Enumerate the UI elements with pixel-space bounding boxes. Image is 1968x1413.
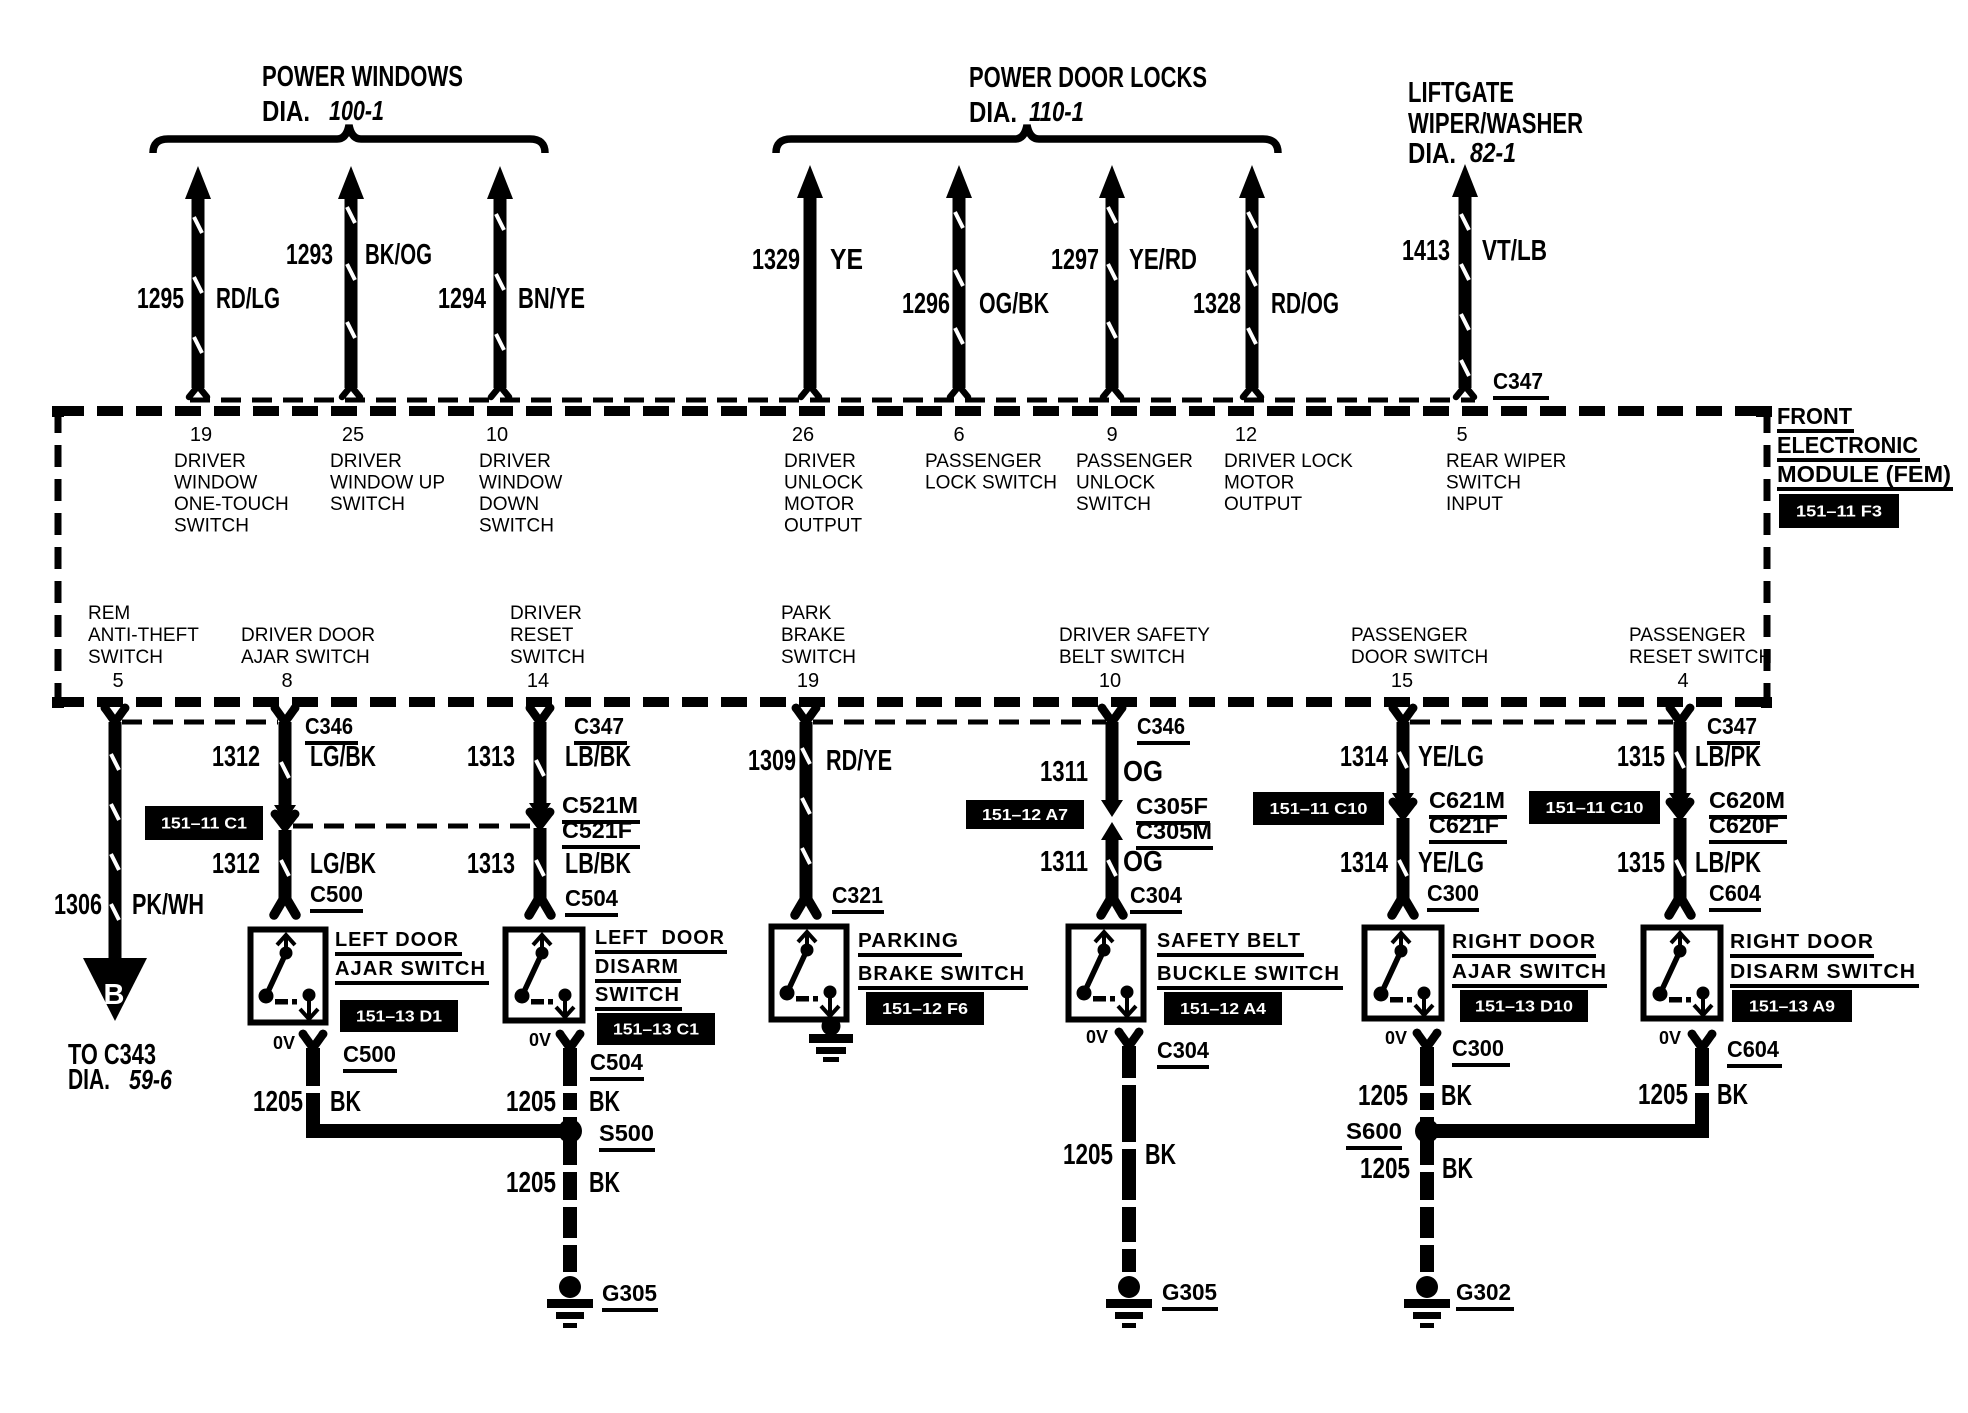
svg-text:151–11 C10: 151–11 C10 xyxy=(1546,800,1644,817)
svg-text:WINDOW: WINDOW xyxy=(479,473,562,494)
svg-text:DRIVER SAFETY: DRIVER SAFETY xyxy=(1059,625,1210,646)
svg-text:C305M: C305M xyxy=(1136,818,1212,844)
svg-text:YE/LG: YE/LG xyxy=(1418,847,1484,879)
svg-text:BUCKLE SWITCH: BUCKLE SWITCH xyxy=(1157,963,1340,985)
svg-text:DIA.: DIA. xyxy=(969,97,1017,129)
svg-text:AJAR SWITCH: AJAR SWITCH xyxy=(241,647,370,668)
svg-text:1313: 1313 xyxy=(467,848,515,880)
svg-text:LG/BK: LG/BK xyxy=(310,848,376,880)
svg-text:DIA.: DIA. xyxy=(262,96,310,128)
svg-text:19: 19 xyxy=(797,670,819,692)
svg-text:C347: C347 xyxy=(574,713,624,739)
svg-text:OUTPUT: OUTPUT xyxy=(784,516,863,537)
svg-text:S500: S500 xyxy=(599,1120,654,1146)
svg-text:1296: 1296 xyxy=(902,288,950,320)
svg-text:1306: 1306 xyxy=(54,889,102,921)
svg-text:C346: C346 xyxy=(305,713,353,739)
svg-text:DOOR SWITCH: DOOR SWITCH xyxy=(1351,647,1488,668)
svg-text:12: 12 xyxy=(1235,424,1257,446)
svg-text:MOTOR: MOTOR xyxy=(1224,473,1294,494)
svg-text:DRIVER: DRIVER xyxy=(174,451,246,472)
svg-text:1315: 1315 xyxy=(1617,741,1665,773)
svg-text:WINDOW UP: WINDOW UP xyxy=(330,473,445,494)
svg-text:LEFT DOOR: LEFT DOOR xyxy=(335,929,459,951)
svg-text:LOCK SWITCH: LOCK SWITCH xyxy=(925,473,1057,494)
svg-text:1205: 1205 xyxy=(506,1167,556,1199)
svg-text:PARK: PARK xyxy=(781,603,832,624)
svg-text:C504: C504 xyxy=(565,885,618,911)
svg-text:82-1: 82-1 xyxy=(1470,137,1516,168)
svg-text:151–12 A7: 151–12 A7 xyxy=(982,807,1068,824)
svg-text:1314: 1314 xyxy=(1340,741,1388,773)
svg-text:C620F: C620F xyxy=(1709,812,1779,838)
svg-text:8: 8 xyxy=(281,670,292,692)
svg-text:SAFETY BELT: SAFETY BELT xyxy=(1157,930,1301,952)
svg-text:UNLOCK: UNLOCK xyxy=(784,473,864,494)
svg-text:C521F: C521F xyxy=(562,817,632,843)
svg-text:DRIVER: DRIVER xyxy=(784,451,856,472)
svg-text:0V: 0V xyxy=(1659,1028,1681,1048)
svg-text:BK: BK xyxy=(1145,1139,1176,1171)
svg-text:6: 6 xyxy=(953,424,964,446)
svg-text:LEFT DOOR: LEFT DOOR xyxy=(595,927,725,949)
svg-text:1314: 1314 xyxy=(1340,847,1388,879)
svg-text:SWITCH: SWITCH xyxy=(88,647,163,668)
svg-text:BK: BK xyxy=(589,1167,620,1199)
svg-text:DISARM SWITCH: DISARM SWITCH xyxy=(1730,961,1916,983)
svg-text:OG: OG xyxy=(1123,846,1163,878)
svg-text:DRIVER: DRIVER xyxy=(479,451,551,472)
svg-text:0V: 0V xyxy=(529,1030,551,1050)
svg-text:151–13 D1: 151–13 D1 xyxy=(356,1009,442,1026)
svg-text:C346: C346 xyxy=(1137,713,1185,739)
svg-text:1205: 1205 xyxy=(506,1086,556,1118)
svg-text:DISARM: DISARM xyxy=(595,956,679,978)
svg-text:RD/LG: RD/LG xyxy=(216,283,280,315)
svg-text:RIGHT DOOR: RIGHT DOOR xyxy=(1730,931,1874,953)
svg-text:DIA.: DIA. xyxy=(1408,138,1456,170)
svg-text:4: 4 xyxy=(1677,670,1688,692)
svg-text:C304: C304 xyxy=(1157,1037,1209,1063)
svg-text:10: 10 xyxy=(1099,670,1121,692)
svg-text:WIPER/WASHER: WIPER/WASHER xyxy=(1408,108,1583,140)
svg-text:SWITCH: SWITCH xyxy=(479,516,554,537)
svg-text:DRIVER: DRIVER xyxy=(330,451,402,472)
svg-text:FRONT: FRONT xyxy=(1777,403,1852,429)
svg-text:C504: C504 xyxy=(590,1049,643,1075)
svg-text:SWITCH: SWITCH xyxy=(330,494,405,515)
svg-text:POWER WINDOWS: POWER WINDOWS xyxy=(262,61,463,93)
svg-text:REAR WIPER: REAR WIPER xyxy=(1446,451,1566,472)
svg-text:151–13 C1: 151–13 C1 xyxy=(613,1022,699,1039)
svg-text:1205: 1205 xyxy=(1358,1080,1408,1112)
svg-text:151–13 D10: 151–13 D10 xyxy=(1475,999,1573,1016)
svg-text:LB/BK: LB/BK xyxy=(565,848,631,880)
svg-text:110-1: 110-1 xyxy=(1029,96,1084,127)
svg-text:1329: 1329 xyxy=(752,244,800,276)
svg-text:SWITCH: SWITCH xyxy=(781,647,856,668)
svg-text:1312: 1312 xyxy=(212,741,260,773)
svg-text:YE/LG: YE/LG xyxy=(1418,741,1484,773)
svg-text:SWITCH: SWITCH xyxy=(1076,494,1151,515)
svg-text:1205: 1205 xyxy=(253,1086,303,1118)
svg-text:C621M: C621M xyxy=(1429,787,1505,813)
svg-text:151–11 C10: 151–11 C10 xyxy=(1270,801,1368,818)
svg-text:UNLOCK: UNLOCK xyxy=(1076,473,1156,494)
svg-text:DRIVER: DRIVER xyxy=(510,603,582,624)
svg-text:MODULE (FEM): MODULE (FEM) xyxy=(1777,461,1951,487)
svg-text:G305: G305 xyxy=(602,1280,657,1306)
svg-text:BRAKE SWITCH: BRAKE SWITCH xyxy=(858,963,1025,985)
svg-text:DOWN: DOWN xyxy=(479,494,539,515)
svg-text:PASSENGER: PASSENGER xyxy=(1351,625,1468,646)
svg-text:15: 15 xyxy=(1391,670,1413,692)
svg-text:BK: BK xyxy=(1717,1079,1748,1111)
svg-text:LB/BK: LB/BK xyxy=(565,741,631,773)
svg-text:PASSENGER: PASSENGER xyxy=(1076,451,1193,472)
svg-text:RIGHT DOOR: RIGHT DOOR xyxy=(1452,931,1596,953)
svg-text:SWITCH: SWITCH xyxy=(510,647,585,668)
svg-text:C620M: C620M xyxy=(1709,787,1785,813)
svg-text:LIFTGATE: LIFTGATE xyxy=(1408,77,1514,109)
svg-text:INPUT: INPUT xyxy=(1446,494,1503,515)
svg-text:C347: C347 xyxy=(1707,713,1757,739)
svg-text:1311: 1311 xyxy=(1040,756,1088,788)
svg-text:PARKING: PARKING xyxy=(858,930,959,952)
svg-text:5: 5 xyxy=(112,670,123,692)
svg-text:S600: S600 xyxy=(1346,1118,1402,1144)
svg-text:BK/OG: BK/OG xyxy=(365,239,432,271)
svg-text:1205: 1205 xyxy=(1063,1139,1113,1171)
svg-text:100-1: 100-1 xyxy=(329,95,384,126)
svg-text:C305F: C305F xyxy=(1136,793,1208,819)
svg-text:C621F: C621F xyxy=(1429,812,1499,838)
svg-text:C604: C604 xyxy=(1727,1036,1779,1062)
svg-text:C304: C304 xyxy=(1130,882,1182,908)
svg-text:BK: BK xyxy=(589,1086,620,1118)
svg-text:BRAKE: BRAKE xyxy=(781,625,845,646)
svg-text:151–12 A4: 151–12 A4 xyxy=(1180,1001,1266,1018)
svg-text:LB/PK: LB/PK xyxy=(1695,741,1761,773)
svg-text:9: 9 xyxy=(1106,424,1117,446)
svg-text:1309: 1309 xyxy=(748,745,796,777)
svg-text:59-6: 59-6 xyxy=(129,1064,172,1095)
svg-text:LB/PK: LB/PK xyxy=(1695,847,1761,879)
svg-text:OUTPUT: OUTPUT xyxy=(1224,494,1303,515)
svg-text:AJAR SWITCH: AJAR SWITCH xyxy=(335,958,486,980)
svg-text:25: 25 xyxy=(342,424,364,446)
svg-text:151–11 F3: 151–11 F3 xyxy=(1796,504,1882,521)
svg-text:0V: 0V xyxy=(1385,1028,1407,1048)
svg-text:RD/OG: RD/OG xyxy=(1271,288,1339,320)
svg-text:DRIVER DOOR: DRIVER DOOR xyxy=(241,625,375,646)
svg-text:ANTI-THEFT: ANTI-THEFT xyxy=(88,625,199,646)
svg-text:1312: 1312 xyxy=(212,848,260,880)
svg-text:LG/BK: LG/BK xyxy=(310,741,376,773)
svg-text:G305: G305 xyxy=(1162,1279,1217,1305)
svg-text:SWITCH: SWITCH xyxy=(595,984,680,1006)
svg-text:151–11 C1: 151–11 C1 xyxy=(161,816,247,833)
svg-text:BN/YE: BN/YE xyxy=(518,283,585,315)
svg-text:WINDOW: WINDOW xyxy=(174,473,257,494)
svg-text:0V: 0V xyxy=(1086,1027,1108,1047)
svg-text:1315: 1315 xyxy=(1617,847,1665,879)
svg-text:AJAR SWITCH: AJAR SWITCH xyxy=(1452,961,1607,983)
svg-text:151–13 A9: 151–13 A9 xyxy=(1749,999,1835,1016)
svg-text:B: B xyxy=(104,979,125,1011)
svg-text:G302: G302 xyxy=(1456,1279,1511,1305)
svg-text:1297: 1297 xyxy=(1051,244,1099,276)
svg-text:1293: 1293 xyxy=(286,239,333,271)
svg-text:BK: BK xyxy=(1441,1080,1472,1112)
svg-text:1295: 1295 xyxy=(137,283,184,315)
svg-text:1205: 1205 xyxy=(1638,1079,1688,1111)
svg-text:BK: BK xyxy=(330,1086,361,1118)
svg-text:C521M: C521M xyxy=(562,792,638,818)
svg-text:C347: C347 xyxy=(1493,368,1543,394)
svg-text:SWITCH: SWITCH xyxy=(174,516,249,537)
svg-text:YE/RD: YE/RD xyxy=(1129,244,1197,276)
svg-text:VT/LB: VT/LB xyxy=(1482,235,1547,267)
svg-text:C300: C300 xyxy=(1427,880,1479,906)
svg-text:MOTOR: MOTOR xyxy=(784,494,854,515)
svg-text:26: 26 xyxy=(792,424,814,446)
svg-text:PASSENGER: PASSENGER xyxy=(925,451,1042,472)
svg-text:YE: YE xyxy=(830,244,863,276)
svg-text:C500: C500 xyxy=(343,1041,396,1067)
svg-text:RESET: RESET xyxy=(510,625,574,646)
svg-text:DIA.: DIA. xyxy=(68,1064,110,1096)
svg-text:151–12 F6: 151–12 F6 xyxy=(882,1001,968,1018)
svg-text:14: 14 xyxy=(527,670,549,692)
svg-text:BK: BK xyxy=(1442,1153,1473,1185)
svg-text:PASSENGER: PASSENGER xyxy=(1629,625,1746,646)
svg-text:C604: C604 xyxy=(1709,880,1761,906)
svg-text:OG/BK: OG/BK xyxy=(979,288,1049,320)
svg-text:POWER DOOR LOCKS: POWER DOOR LOCKS xyxy=(969,62,1207,94)
svg-text:BELT SWITCH: BELT SWITCH xyxy=(1059,647,1185,668)
svg-text:SWITCH: SWITCH xyxy=(1446,473,1521,494)
svg-text:1205: 1205 xyxy=(1360,1153,1410,1185)
svg-text:1328: 1328 xyxy=(1193,288,1241,320)
svg-text:10: 10 xyxy=(486,424,508,446)
svg-text:C500: C500 xyxy=(310,881,363,907)
svg-text:1413: 1413 xyxy=(1402,235,1450,267)
svg-text:RESET SWITCH: RESET SWITCH xyxy=(1629,647,1772,668)
svg-text:PK/WH: PK/WH xyxy=(132,889,204,921)
svg-text:ONE-TOUCH: ONE-TOUCH xyxy=(174,494,289,515)
svg-text:OG: OG xyxy=(1123,756,1163,788)
svg-text:C321: C321 xyxy=(832,882,883,908)
svg-text:1294: 1294 xyxy=(438,283,486,315)
svg-text:1313: 1313 xyxy=(467,741,515,773)
svg-text:DRIVER LOCK: DRIVER LOCK xyxy=(1224,451,1353,472)
svg-text:1311: 1311 xyxy=(1040,846,1088,878)
svg-text:0V: 0V xyxy=(273,1033,295,1053)
svg-text:REM: REM xyxy=(88,603,130,624)
svg-text:RD/YE: RD/YE xyxy=(826,745,892,777)
svg-text:ELECTRONIC: ELECTRONIC xyxy=(1777,432,1918,458)
svg-text:C300: C300 xyxy=(1452,1035,1504,1061)
svg-text:5: 5 xyxy=(1456,424,1467,446)
svg-text:19: 19 xyxy=(190,424,212,446)
